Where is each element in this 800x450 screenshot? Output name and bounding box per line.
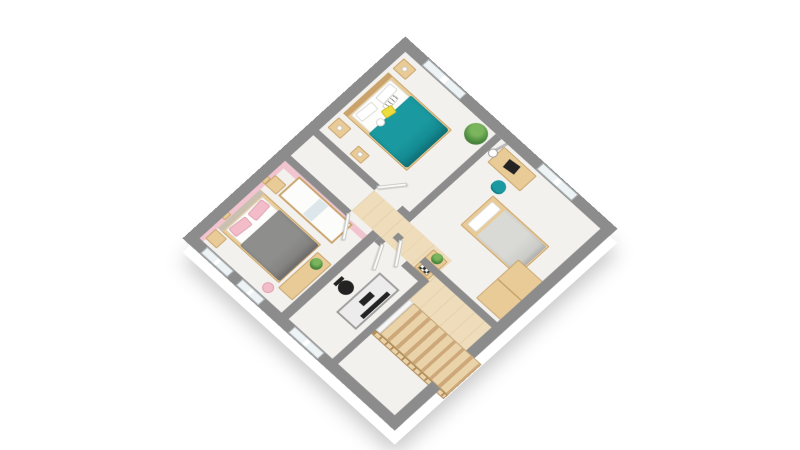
floorplan-canvas <box>0 0 800 450</box>
